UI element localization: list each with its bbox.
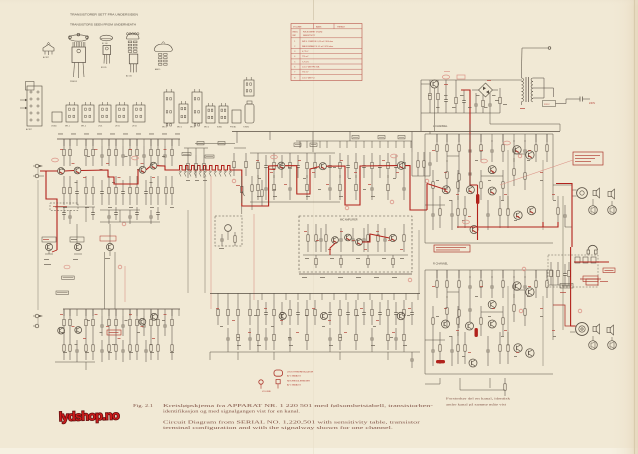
svg-text:3: 3 (294, 51, 295, 53)
svg-text:lydshop.no: lydshop.no (59, 408, 121, 424)
svg-text:AV 1 KANALST.: AV 1 KANALST. (287, 384, 302, 387)
svg-text:24OV: 24OV (589, 102, 596, 105)
svg-text:AC187: AC187 (26, 128, 32, 131)
svg-text:TREBLE: TREBLE (337, 26, 345, 28)
svg-text:UTG1: UTG1 (115, 126, 120, 128)
svg-text:BC 140: BC 140 (102, 43, 108, 45)
svg-text:BD135: BD135 (101, 67, 107, 69)
svg-text:terminal configuration and wit: terminal configuration and with the sign… (163, 425, 393, 430)
svg-text:andre kanal på samme måte vist: andre kanal på samme måte vist (446, 404, 507, 407)
svg-text:2: 2 (294, 46, 295, 48)
svg-text:1: 1 (294, 41, 295, 43)
svg-text:5: 5 (294, 61, 295, 63)
svg-text:4: 4 (294, 56, 295, 58)
svg-text:NF1.4: NF1.4 (81, 126, 86, 128)
svg-text:AA119: AA119 (155, 68, 160, 71)
svg-text:CR300: CR300 (51, 126, 57, 128)
svg-text:1,55 V DIN HP/LYDB.: 1,55 V DIN HP/LYDB. (302, 67, 320, 69)
svg-text:FØLS. 1 MIKROF. 0,15 mV / 600: FØLS. 1 MIKROF. 0,15 mV / 600 ohm (302, 41, 333, 43)
svg-text:1,55 V DIN P.U.: 1,55 V DIN P.U. (302, 77, 315, 79)
svg-text:22OV: 22OV (544, 104, 550, 106)
svg-text:INP.: INP. (293, 35, 297, 37)
svg-text:NF2.1: NF2.1 (162, 127, 167, 129)
svg-text:VOLUME: VOLUME (262, 391, 271, 393)
svg-text:BASS: BASS (316, 25, 322, 28)
svg-text:R CHANNEL: R CHANNEL (433, 262, 449, 266)
svg-text:NF1.1: NF1.1 (65, 126, 70, 128)
svg-text:SENSITIVITY: SENSITIVITY (303, 35, 316, 37)
svg-text:6: 6 (294, 67, 295, 69)
svg-text:TONE2: TONE2 (243, 127, 249, 129)
svg-text:FØLSOMHET V/1kHz: FØLSOMHET V/1kHz (303, 32, 322, 34)
svg-text:LYD1: LYD1 (98, 126, 102, 128)
svg-text:NF2.3: NF2.3 (190, 127, 195, 129)
svg-text:MIC AMPLIFIER: MIC AMPLIFIER (340, 219, 358, 222)
svg-text:7,75 mV: 7,75 mV (302, 61, 310, 63)
svg-text:INNG.: INNG. (293, 32, 299, 34)
svg-text:identifikasjon og med signalga: identifikasjon og med signalgangen vist … (163, 409, 300, 414)
svg-text:AC187: AC187 (43, 56, 49, 59)
svg-text:2N3055: 2N3055 (70, 81, 78, 83)
svg-text:7: 7 (294, 72, 295, 74)
svg-text:LYDSTYRKEREGULATOR: LYDSTYRKEREGULATOR (287, 371, 314, 374)
svg-text:L CHANNEL: L CHANNEL (433, 124, 448, 128)
svg-text:NF2.2: NF2.2 (177, 127, 182, 129)
svg-text:VOLUME: VOLUME (293, 26, 302, 28)
svg-text:NIVOREGULERINGER: NIVOREGULERINGER (287, 381, 310, 383)
svg-text:UTG2: UTG2 (132, 126, 137, 128)
svg-text:AV 1 KANALST.: AV 1 KANALST. (287, 375, 302, 378)
svg-text:TRANSISTORS SEEN FROM UNDERNEA: TRANSISTORS SEEN FROM UNDERNEATH (70, 23, 136, 27)
svg-text:Forsterker del en kanal, ident: Forsterker del en kanal, identisk (446, 398, 511, 401)
svg-text:PROB1: PROB1 (230, 127, 236, 129)
svg-text:0,775 V: 0,775 V (302, 51, 309, 53)
svg-text:NF2.4: NF2.4 (204, 127, 209, 129)
svg-text:AD 161: AD 161 (126, 75, 132, 78)
svg-text:775 mV: 775 mV (302, 72, 309, 74)
svg-text:TRANSISTORER SETT FRA UNDERSID: TRANSISTORER SETT FRA UNDERSIDEN (70, 13, 138, 17)
svg-text:RADIO/GRAM P.U. 45 mV / 470 ko: RADIO/GRAM P.U. 45 mV / 470 kohm (302, 45, 334, 48)
svg-text:SUM1: SUM1 (217, 127, 222, 129)
svg-text:775 mV: 775 mV (302, 56, 309, 58)
svg-text:8: 8 (294, 77, 295, 79)
svg-text:Fig. 2.1: Fig. 2.1 (133, 403, 154, 408)
